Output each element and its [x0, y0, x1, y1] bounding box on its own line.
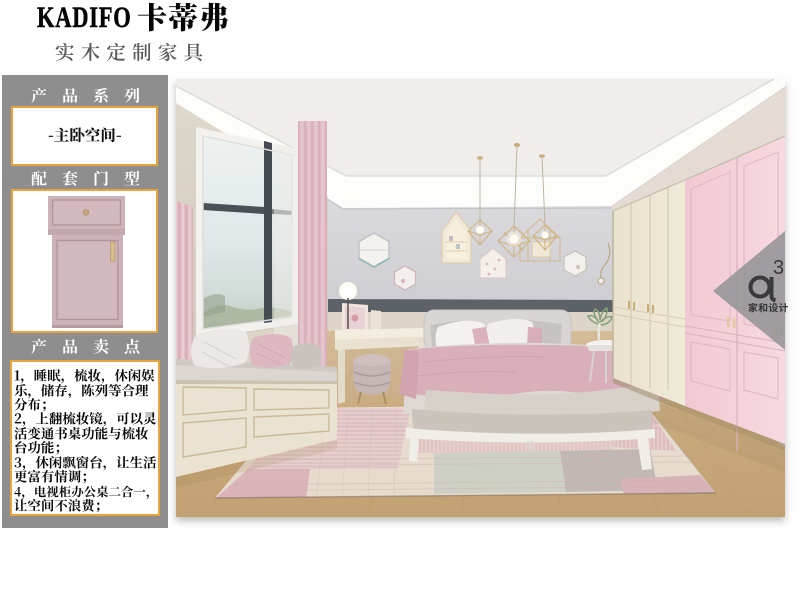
svg-text:3: 3 [773, 257, 784, 279]
